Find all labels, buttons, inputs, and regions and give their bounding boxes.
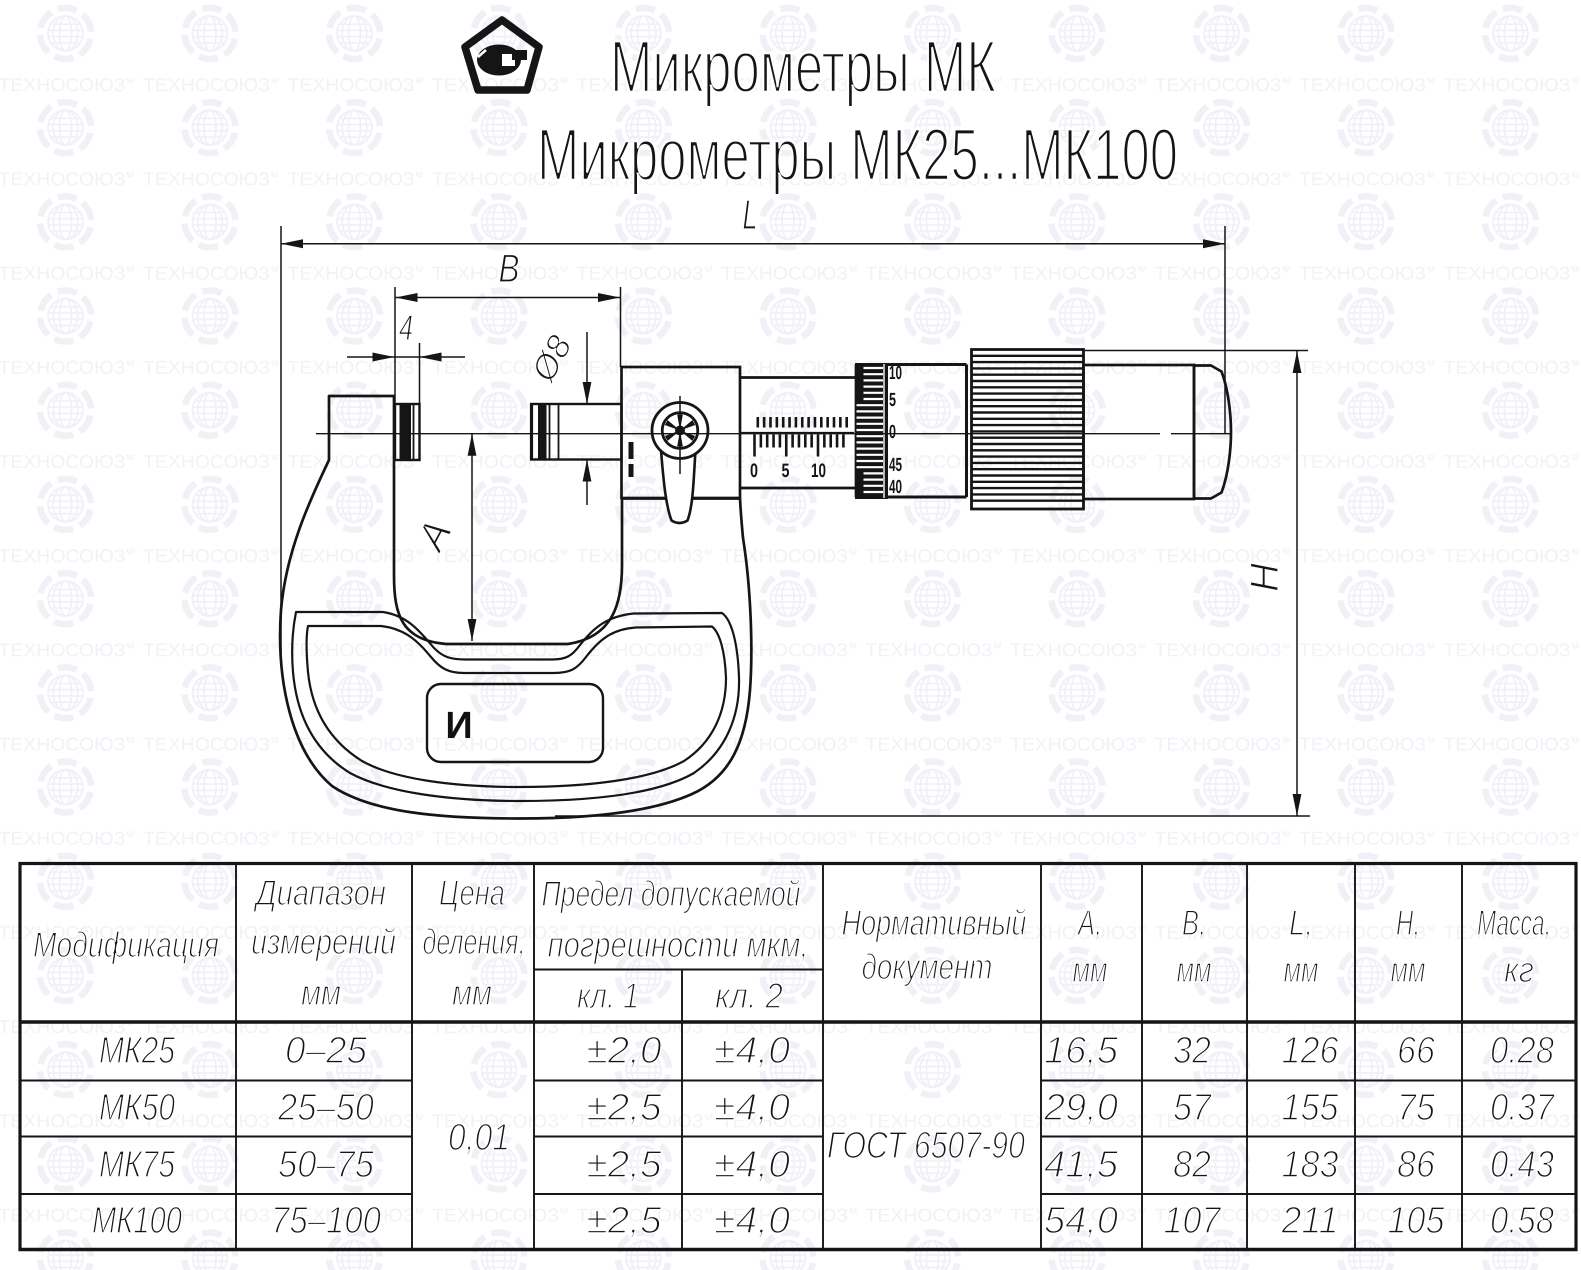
svg-text:Предел допускаемой: Предел допускаемой — [542, 873, 801, 914]
svg-text:25–50: 25–50 — [277, 1087, 374, 1129]
svg-text:86: 86 — [1397, 1144, 1436, 1186]
svg-text:66: 66 — [1397, 1030, 1436, 1072]
svg-text:мм: мм — [1284, 949, 1319, 990]
svg-text:4: 4 — [399, 307, 413, 348]
svg-text:45: 45 — [889, 455, 902, 476]
svg-text:211: 211 — [1281, 1200, 1339, 1242]
svg-text:105: 105 — [1388, 1200, 1446, 1242]
svg-text:±4,0: ±4,0 — [714, 1030, 790, 1072]
svg-text:МК100: МК100 — [92, 1200, 182, 1242]
svg-text:Микрометры МК: Микрометры МК — [610, 25, 996, 108]
svg-text:107: 107 — [1164, 1200, 1223, 1242]
svg-text:В,: В, — [1182, 902, 1206, 943]
svg-text:0.43: 0.43 — [1490, 1144, 1554, 1186]
svg-text:±2,0: ±2,0 — [587, 1030, 662, 1072]
svg-text:10: 10 — [889, 363, 902, 384]
svg-text:0.28: 0.28 — [1490, 1030, 1554, 1072]
svg-text:0.37: 0.37 — [1490, 1087, 1556, 1129]
svg-text:ГОСТ 6507-90: ГОСТ 6507-90 — [827, 1125, 1025, 1167]
svg-text:±2,5: ±2,5 — [587, 1087, 663, 1129]
svg-text:Диапазон: Диапазон — [253, 872, 386, 913]
svg-text:0–25: 0–25 — [285, 1030, 368, 1072]
svg-text:183: 183 — [1282, 1144, 1339, 1186]
svg-text:мм: мм — [1391, 949, 1426, 990]
svg-text:мм: мм — [301, 972, 341, 1013]
svg-text:75: 75 — [1397, 1087, 1436, 1129]
svg-text:погрешности мкм,: погрешности мкм, — [548, 924, 809, 965]
svg-text:Масса,: Масса, — [1477, 902, 1551, 943]
svg-text:кл. 1: кл. 1 — [577, 975, 639, 1016]
svg-text:40: 40 — [889, 477, 902, 498]
svg-text:И: И — [445, 705, 472, 747]
svg-text:Нормативный: Нормативный — [842, 902, 1027, 943]
svg-text:измерений: измерений — [251, 921, 396, 962]
svg-text:Микрометры МК25...МК100: Микрометры МК25...МК100 — [537, 113, 1178, 196]
svg-text:29,0: 29,0 — [1043, 1087, 1118, 1129]
svg-text:±4,0: ±4,0 — [714, 1200, 790, 1242]
svg-text:5: 5 — [782, 460, 790, 482]
svg-text:Н: Н — [1243, 563, 1287, 592]
svg-text:±4,0: ±4,0 — [714, 1087, 790, 1129]
svg-text:155: 155 — [1282, 1087, 1340, 1129]
svg-text:кг: кг — [1504, 949, 1534, 990]
svg-text:Цена: Цена — [439, 872, 505, 913]
svg-text:мм: мм — [452, 972, 492, 1013]
svg-text:0.58: 0.58 — [1490, 1200, 1554, 1242]
svg-text:документ: документ — [862, 946, 993, 987]
svg-text:МК25: МК25 — [99, 1030, 176, 1072]
svg-text:±4,0: ±4,0 — [714, 1144, 790, 1186]
svg-text:0: 0 — [889, 422, 896, 443]
svg-text:10: 10 — [811, 460, 826, 482]
svg-text:±2,5: ±2,5 — [587, 1144, 663, 1186]
svg-text:B: B — [499, 247, 520, 291]
svg-text:5: 5 — [889, 390, 896, 411]
svg-text:54,0: 54,0 — [1044, 1200, 1118, 1242]
svg-text:50–75: 50–75 — [278, 1144, 375, 1186]
svg-text:МК75: МК75 — [99, 1144, 176, 1186]
svg-text:мм: мм — [1177, 949, 1212, 990]
svg-text:32: 32 — [1173, 1030, 1211, 1072]
svg-text:57: 57 — [1173, 1087, 1213, 1129]
svg-text:Модификация: Модификация — [33, 924, 219, 965]
svg-text:деления,: деления, — [423, 921, 526, 962]
svg-text:±2,5: ±2,5 — [587, 1200, 663, 1242]
svg-text:МК50: МК50 — [99, 1087, 175, 1129]
svg-text:41,5: 41,5 — [1044, 1144, 1119, 1186]
svg-text:L: L — [743, 191, 758, 238]
svg-text:16,5: 16,5 — [1044, 1030, 1119, 1072]
svg-text:75–100: 75–100 — [271, 1200, 381, 1242]
svg-text:126: 126 — [1282, 1030, 1340, 1072]
svg-text:0: 0 — [750, 460, 758, 482]
svg-text:82: 82 — [1173, 1144, 1211, 1186]
svg-text:0,01: 0,01 — [448, 1117, 510, 1159]
svg-text:L,: L, — [1289, 902, 1313, 943]
svg-text:кл. 2: кл. 2 — [715, 975, 783, 1016]
svg-text:Н,: Н, — [1396, 902, 1420, 943]
svg-text:мм: мм — [1073, 949, 1108, 990]
svg-text:А,: А, — [1077, 902, 1102, 943]
